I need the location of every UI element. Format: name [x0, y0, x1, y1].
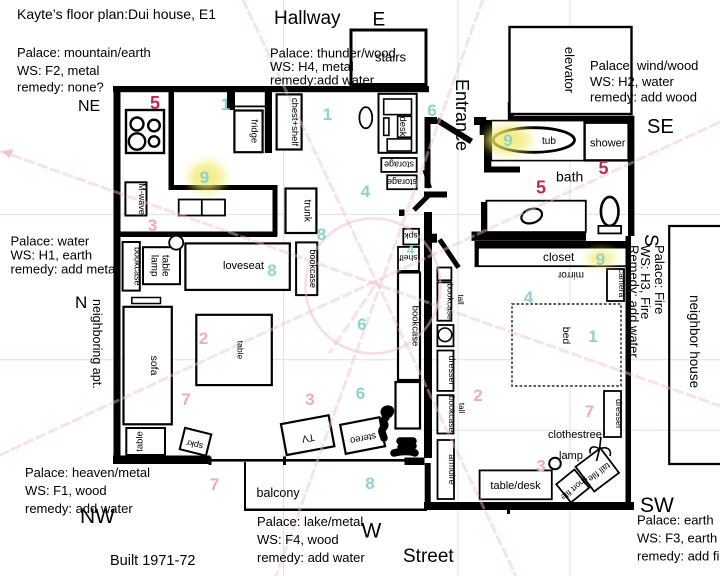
svg-text:3: 3 [305, 390, 314, 409]
svg-text:3: 3 [536, 457, 545, 476]
svg-text:tall: tall [456, 294, 465, 304]
svg-text:remedy: add fire: remedy: add fire [637, 549, 720, 564]
svg-text:W: W [362, 520, 382, 543]
svg-text:bookcase: bookcase [446, 283, 456, 320]
svg-text:balcony: balcony [257, 486, 301, 500]
svg-text:closet: closet [543, 250, 575, 264]
svg-text:Palace: earth: Palace: earth [637, 513, 714, 528]
svg-text:1: 1 [221, 95, 230, 114]
svg-text:chest+shelf: chest+shelf [289, 98, 300, 147]
svg-text:Palace: Fire: Palace: Fire [652, 245, 667, 314]
svg-text:lamp: lamp [149, 255, 160, 277]
svg-text:6: 6 [357, 315, 366, 334]
svg-text:Hallway: Hallway [274, 8, 341, 29]
svg-text:5: 5 [598, 158, 608, 178]
svg-text:N: N [75, 293, 87, 312]
svg-text:sofa: sofa [148, 356, 160, 376]
svg-text:8: 8 [365, 474, 374, 493]
svg-text:2: 2 [473, 386, 482, 405]
svg-text:dresser: dresser [614, 399, 624, 429]
svg-text:4: 4 [524, 288, 534, 307]
svg-text:Kayte’s floor plan:Dui house,: Kayte’s floor plan:Dui house, E1 [17, 6, 216, 22]
svg-text:dresser: dresser [447, 355, 457, 385]
svg-text:Palace: lake/metal: Palace: lake/metal [257, 514, 363, 529]
svg-text:neighbor house: neighbor house [687, 295, 702, 388]
svg-text:table: table [160, 255, 171, 277]
svg-text:8: 8 [317, 225, 326, 244]
svg-text:tub: tub [542, 136, 556, 147]
svg-text:5: 5 [536, 178, 546, 198]
svg-text:trunk: trunk [302, 200, 313, 223]
svg-text:7: 7 [181, 390, 190, 409]
svg-text:9: 9 [200, 168, 209, 187]
svg-text:Palace: wind/wood: Palace: wind/wood [590, 58, 698, 73]
svg-text:Palace: water: Palace: water [11, 234, 90, 249]
svg-text:9: 9 [503, 131, 512, 150]
svg-text:clothestree: clothestree [548, 429, 602, 441]
svg-text:neighboring apt.: neighboring apt. [90, 299, 104, 389]
svg-text:storage: storage [387, 177, 417, 187]
svg-text:WS: F3, earth: WS: F3, earth [637, 531, 717, 546]
svg-text:Built 1971-72: Built 1971-72 [110, 553, 195, 569]
svg-text:E: E [373, 10, 386, 31]
svg-text:WS: F1, wood: WS: F1, wood [25, 483, 107, 498]
svg-text:Palace: heaven/metal: Palace: heaven/metal [25, 465, 150, 480]
svg-text:1: 1 [588, 327, 597, 346]
svg-text:stairs: stairs [375, 50, 407, 65]
svg-text:7: 7 [210, 475, 219, 494]
svg-text:storage: storage [384, 160, 414, 170]
svg-text:shelf: shelf [399, 253, 418, 263]
svg-text:elevator: elevator [562, 47, 577, 94]
svg-text:loveseat: loveseat [223, 260, 264, 272]
svg-text:spk: spk [404, 231, 418, 241]
svg-text:armoire: armoire [447, 454, 457, 485]
svg-text:TV: TV [300, 431, 315, 444]
svg-text:lamp: lamp [559, 450, 583, 462]
svg-text:Street: Street [403, 546, 454, 567]
svg-text:remedy: none?: remedy: none? [17, 80, 104, 95]
svg-text:remedy:add water: remedy:add water [270, 73, 375, 88]
svg-text:remedy: add water: remedy: add water [257, 550, 365, 565]
svg-text:8: 8 [267, 261, 276, 280]
svg-text:SE: SE [647, 116, 674, 138]
svg-text:tall: tall [457, 403, 466, 413]
svg-text:remedy: add metal: remedy: add metal [11, 262, 119, 277]
svg-text:Remedy: add water: Remedy: add water [627, 245, 642, 358]
svg-text:WS: H2, water: WS: H2, water [590, 74, 674, 89]
svg-text:WS: F2, metal: WS: F2, metal [17, 63, 99, 78]
svg-text:bookcase: bookcase [308, 249, 318, 288]
svg-text:Entrance: Entrance [452, 79, 472, 151]
svg-text:WS: H1, earth: WS: H1, earth [11, 248, 93, 263]
svg-text:bath: bath [556, 169, 583, 185]
svg-text:9: 9 [596, 250, 605, 269]
svg-text:6: 6 [427, 101, 436, 120]
svg-text:Palace: mountain/earth: Palace: mountain/earth [17, 45, 151, 60]
svg-text:6: 6 [356, 384, 365, 403]
svg-text:WS: F4, wood: WS: F4, wood [257, 532, 339, 547]
svg-text:4: 4 [361, 182, 371, 201]
svg-text:7: 7 [585, 402, 594, 421]
svg-text:mirror: mirror [557, 269, 584, 280]
svg-text:1: 1 [323, 105, 332, 124]
svg-text:remedy: add wood: remedy: add wood [590, 90, 697, 105]
svg-text:bookcase: bookcase [133, 247, 143, 286]
svg-text:bookcase: bookcase [447, 396, 457, 433]
svg-text:table/desk: table/desk [490, 480, 541, 492]
svg-text:NW: NW [80, 505, 115, 528]
svg-text:shower: shower [590, 138, 626, 150]
svg-text:bed: bed [560, 327, 572, 345]
svg-text:5: 5 [150, 93, 160, 113]
svg-text:table: table [135, 431, 146, 452]
svg-text:fridge: fridge [249, 119, 260, 143]
svg-text:NE: NE [78, 98, 100, 115]
svg-text:desk: desk [397, 116, 408, 136]
svg-text:3: 3 [148, 216, 157, 235]
svg-text:camera: camera [617, 269, 627, 298]
svg-text:table: table [236, 341, 246, 360]
svg-text:M-wave: M-wave [137, 183, 147, 215]
svg-text:2: 2 [199, 329, 208, 348]
svg-text:bookcase: bookcase [410, 306, 421, 347]
